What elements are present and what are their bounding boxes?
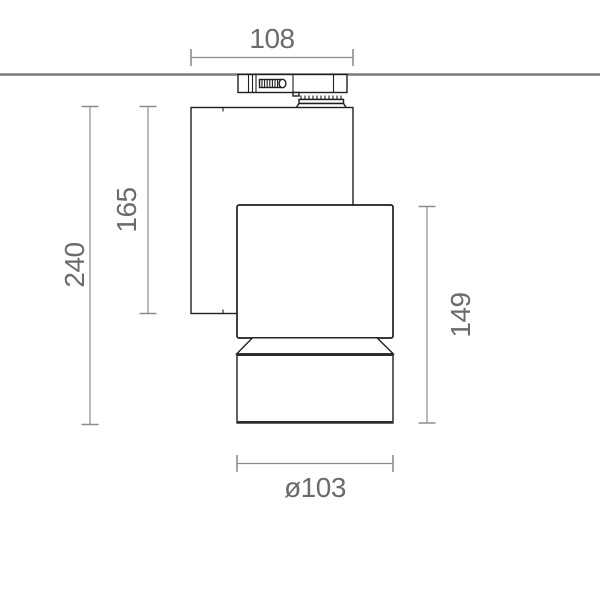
track-adapter — [238, 75, 347, 109]
lamp-shade-cylinder — [236, 354, 393, 423]
lamp-bezel-cone — [237, 338, 393, 354]
lamp-head — [237, 205, 393, 338]
dim-label-240: 240 — [59, 242, 90, 287]
adapter-dial-ring — [296, 96, 347, 109]
dim-body-height: 165 — [111, 107, 157, 314]
dim-label-165: 165 — [111, 187, 142, 232]
adapter-knurled-screw-icon — [260, 79, 286, 87]
dim-head-height: 149 — [419, 207, 477, 424]
dim-label-149: 149 — [445, 292, 476, 337]
cylinder-outline — [237, 354, 393, 423]
technical-drawing-page: 108 240 165 149 ø103 — [0, 0, 600, 600]
dim-adapter-width: 108 — [191, 23, 353, 66]
dim-head-diameter: ø103 — [237, 455, 393, 503]
dim-label-diameter: ø103 — [284, 472, 346, 503]
adapter-step — [293, 93, 299, 97]
dim-overall-height: 240 — [59, 107, 99, 425]
spotlight-dimension-drawing: 108 240 165 149 ø103 — [0, 0, 600, 600]
dim-label-108: 108 — [249, 23, 294, 54]
